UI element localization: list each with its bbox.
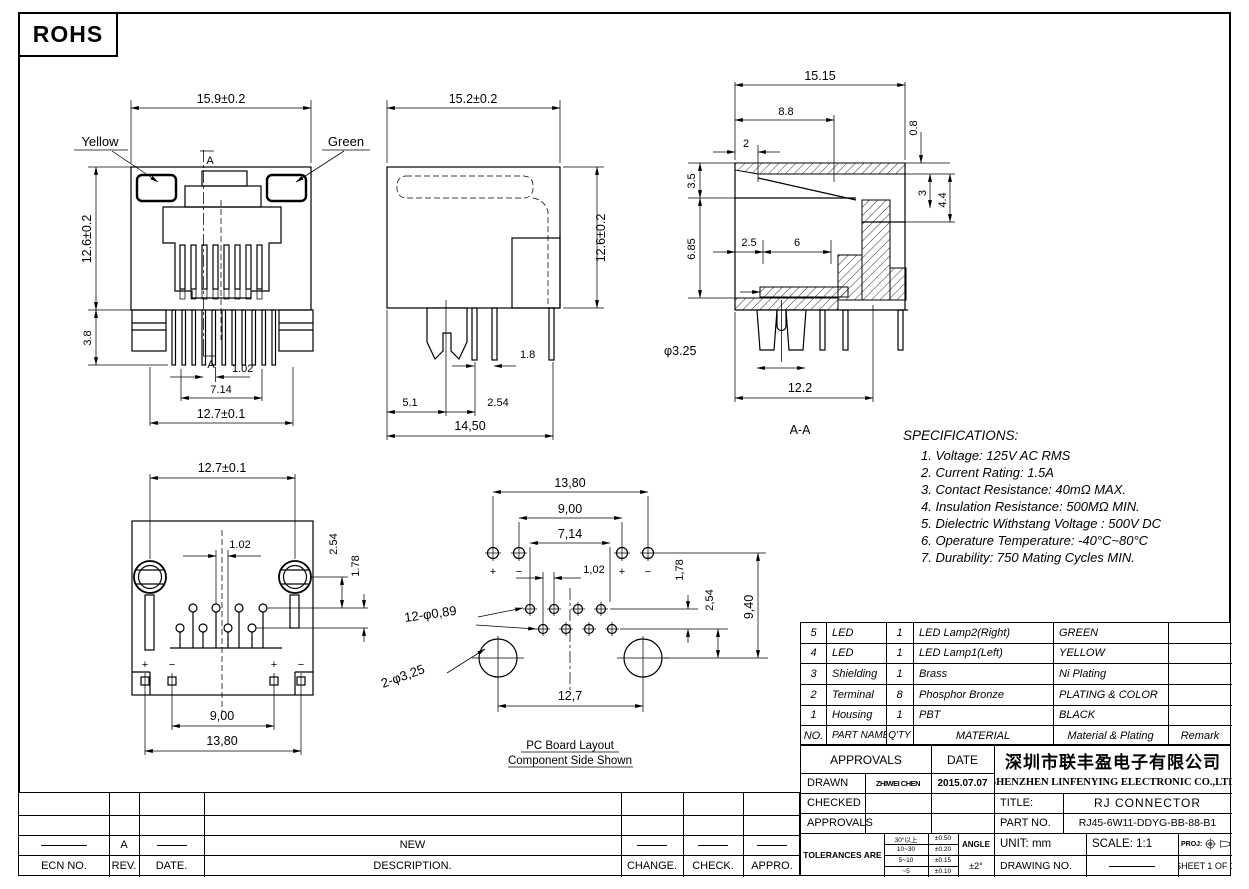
- tolerances-label: TOLERANCES ARE: [801, 833, 884, 877]
- rev-header-date: DATE.: [139, 855, 204, 877]
- rev-appro-dash: [743, 835, 801, 855]
- front-dim-pitch: 1.02: [232, 363, 253, 375]
- bottom-dim-pitch: 1.02: [229, 539, 250, 551]
- pcb-dim-bottom: 12,7: [558, 689, 582, 703]
- rev-ecn-dash: [19, 835, 109, 855]
- pcb-led-holes: [485, 545, 656, 561]
- side-dim-total: 14,50: [454, 419, 485, 433]
- section-view: 15.15 8.8 2 0.8 3 4.4 3.5 6.85 2.5: [664, 69, 955, 437]
- bom-material: LED Lamp2(Right): [913, 623, 1053, 643]
- pcb-dim-r1: 1,78: [674, 559, 686, 580]
- bottom-dim-row2: 1.78: [350, 555, 362, 576]
- bom-header-remark: Remark: [1168, 725, 1232, 746]
- bom-header-qty: Q'TY: [886, 725, 913, 746]
- spec-item: 2. Current Rating: 1.5A: [921, 465, 1238, 480]
- front-dim-pin: 3.8: [82, 330, 94, 345]
- bom-table: 5 LED 1 LED Lamp2(Right) GREEN 4 LED 1 L…: [800, 622, 1231, 745]
- sec-dim-a: 8.8: [778, 106, 793, 118]
- rev-check-dash: [683, 835, 743, 855]
- approvals-header: APPROVALS: [801, 746, 931, 773]
- pcb-dim-inner: 9,00: [558, 502, 582, 516]
- bom-part: Housing: [826, 705, 886, 725]
- rev-header-change: CHANGE.: [621, 855, 683, 877]
- company-name-en: SHENZHEN LINFENYING ELECTRONIC CO.,LTD: [994, 772, 1232, 793]
- rev-change-dash: [621, 835, 683, 855]
- front-dim-total: 12.7±0.1: [197, 407, 246, 421]
- bom-material: Phosphor Bronze: [913, 684, 1053, 705]
- rev-header-check: CHECK.: [683, 855, 743, 877]
- sec-dim-h: 2.5: [741, 237, 756, 249]
- tol-value-1: ±0.50: [928, 833, 958, 844]
- front-view: A A Yellow Green 15.9±0.2 12.6±0.2 3.8 1…: [74, 92, 370, 426]
- sec-dim-d: 3.5: [686, 173, 698, 188]
- pcb-minus-1: −: [516, 566, 522, 578]
- scale-cell: SCALE: 1:1: [1086, 833, 1178, 855]
- company-name-cn: 深圳市联丰盈电子有限公司: [994, 746, 1232, 774]
- unit-cell: UNIT: mm: [994, 833, 1086, 855]
- section-letter-top: A: [206, 155, 214, 167]
- terminal-comb: [170, 604, 282, 648]
- bom-material: LED Lamp1(Left): [913, 643, 1053, 663]
- drawing-sheet: ROHS: [0, 0, 1249, 889]
- angle-label: ANGLE: [958, 833, 994, 855]
- tol-range-4: ~5: [884, 866, 928, 877]
- bom-part: LED: [826, 623, 886, 643]
- spec-item: 5. Dielectric Withstang Voltage : 500V D…: [921, 516, 1238, 531]
- rev-header-desc: DESCRIPTION.: [204, 855, 621, 877]
- bom-qty: 8: [886, 684, 913, 705]
- sec-dim-b: 2: [743, 138, 749, 150]
- title-label: TITLE:: [994, 793, 1063, 813]
- bom-qty: 1: [886, 623, 913, 643]
- pcb-dim-pitch: 1,02: [583, 564, 604, 576]
- title-block: APPROVALS DATE DRAWN ZHIWEI CHEN 2015.07…: [800, 745, 1231, 876]
- led-window-yellow: [137, 175, 176, 201]
- drawn-date: 2015.07.07: [931, 773, 994, 793]
- side-dim-height: 12.6±0.2: [594, 214, 608, 263]
- bom-material: Brass: [913, 663, 1053, 684]
- pad-plus-2: +: [271, 659, 277, 671]
- bom-header-material: MATERIAL: [913, 725, 1053, 746]
- bottom-dim-top: 12.7±0.1: [198, 461, 247, 475]
- bom-plating: Ni Plating: [1053, 663, 1168, 684]
- drawn-label: DRAWN: [801, 773, 865, 793]
- date-header: DATE: [931, 746, 994, 773]
- pad-minus-1: −: [169, 659, 175, 671]
- proj-cell: PROJ:: [1178, 833, 1232, 855]
- bom-qty: 1: [886, 663, 913, 684]
- spec-item: 1. Voltage: 125V AC RMS: [921, 448, 1238, 463]
- rev-date-dash: [139, 835, 204, 855]
- pcb-terminal-holes: [523, 602, 619, 636]
- sec-dim-width: 15.15: [804, 69, 835, 83]
- rev-header-rev: REV.: [109, 855, 139, 877]
- bottom-dim-inner: 9,00: [210, 709, 234, 723]
- bom-no: 4: [801, 643, 826, 663]
- bottom-dim-row: 2.54: [328, 533, 340, 554]
- tol-range-2: 10~30: [884, 844, 928, 855]
- angle-value: ±2°: [958, 855, 994, 877]
- drawing-no-label: DRAWING NO.: [994, 855, 1086, 877]
- drawing-no-dash: [1109, 866, 1155, 867]
- title-value: RJ CONNECTOR: [1063, 793, 1232, 813]
- front-dim-height: 12.6±0.2: [80, 215, 94, 264]
- sec-dim-hole: φ3.25: [664, 344, 696, 358]
- part-no-label: PART NO.: [994, 813, 1063, 833]
- sec-dim-g: 6.85: [686, 238, 698, 259]
- pcb-plus-2: +: [619, 566, 625, 578]
- spec-item: 7. Durability: 750 Mating Cycles MIN.: [921, 550, 1238, 565]
- bom-no: 3: [801, 663, 826, 684]
- bom-qty: 1: [886, 705, 913, 725]
- drawing-no-value: [1086, 855, 1178, 877]
- pcb-callout-small: 12-φ0,89: [403, 603, 457, 625]
- front-dim-width: 15.9±0.2: [197, 92, 246, 106]
- pcb-dim-r3: 9,40: [742, 595, 756, 619]
- sec-dim-total: 12.2: [788, 381, 812, 395]
- bom-qty: 1: [886, 643, 913, 663]
- led-label-green: Green: [328, 134, 364, 149]
- revision-table: A NEW ECN NO. REV. DATE. DESCRIPTION. CH…: [18, 792, 800, 876]
- bom-header-part: PART NAME: [826, 725, 886, 746]
- bom-plating: GREEN: [1053, 623, 1168, 643]
- approvals-label: APPROVALS: [801, 813, 881, 833]
- pcb-caption-2: Component Side Shown: [508, 755, 632, 767]
- bom-header-no: NO.: [801, 725, 826, 746]
- bottom-dim-outer: 13,80: [206, 734, 237, 748]
- tol-value-3: ±0.15: [928, 855, 958, 866]
- section-label: A-A: [790, 423, 812, 437]
- side-dim-b: 2.54: [487, 397, 508, 409]
- rev-letter: A: [109, 835, 139, 855]
- spec-item: 3. Contact Resistance: 40mΩ MAX.: [921, 482, 1238, 497]
- bom-no: 2: [801, 684, 826, 705]
- bom-part: LED: [826, 643, 886, 663]
- sec-dim-f: 4.4: [937, 192, 949, 207]
- side-dim-pinw: 1.8: [520, 349, 535, 361]
- pad-minus-2: −: [298, 659, 304, 671]
- sheet-cell: SHEET 1 OF 1: [1178, 855, 1232, 877]
- tol-range-1: 30°以上: [884, 833, 928, 844]
- spec-item: 6. Operature Temperature: -40°C~80°C: [921, 533, 1238, 548]
- side-dim-width: 15.2±0.2: [449, 92, 498, 106]
- tol-value-4: ±0.10: [928, 866, 958, 877]
- section-letter-bottom: A: [207, 359, 215, 371]
- bom-plating: BLACK: [1053, 705, 1168, 725]
- bom-no: 5: [801, 623, 826, 643]
- pcb-dim-outer: 13,80: [554, 476, 585, 490]
- bom-part: Shielding: [826, 663, 886, 684]
- rev-header-appro: APPRO.: [743, 855, 801, 877]
- projection-symbol-icon: [1204, 836, 1232, 852]
- drawn-name: ZHIWEI CHEN: [865, 773, 931, 793]
- proj-label: PROJ:: [1181, 841, 1202, 848]
- pcb-dim-span: 7,14: [558, 527, 582, 541]
- bom-plating: YELLOW: [1053, 643, 1168, 663]
- bottom-view: + − + − 12.7±0.1 1.02 2.54 1.78 9,00 13,…: [132, 461, 368, 755]
- specifications: SPECIFICATIONS: 1. Voltage: 125V AC RMS …: [903, 428, 1238, 565]
- bom-header-plating: Material & Plating: [1053, 725, 1168, 746]
- pcb-plus-1: +: [490, 566, 496, 578]
- led-pads: [141, 673, 305, 690]
- specs-title: SPECIFICATIONS:: [903, 428, 1238, 443]
- sec-dim-c: 0.8: [908, 120, 920, 135]
- pcb-caption-1: PC Board Layout: [526, 740, 614, 752]
- rev-header-ecn: ECN NO.: [19, 855, 109, 877]
- pcb-minus-2: −: [645, 566, 651, 578]
- bom-no: 1: [801, 705, 826, 725]
- side-dim-a: 5.1: [402, 397, 417, 409]
- checked-label: CHECKED: [801, 793, 865, 813]
- bom-part: Terminal: [826, 684, 886, 705]
- spec-item: 4. Insulation Resistance: 500MΩ MIN.: [921, 499, 1238, 514]
- pcb-layout-view: + − + − 12-φ0,89 2-φ3,25: [379, 476, 768, 767]
- sec-dim-i: 6: [794, 237, 800, 249]
- front-pins: [172, 310, 276, 365]
- bom-material: PBT: [913, 705, 1053, 725]
- pcb-dim-r2: 2,54: [704, 589, 716, 610]
- side-shield-leg: [427, 308, 467, 359]
- pad-plus-1: +: [142, 659, 148, 671]
- pcb-callout-big: 2-φ3,25: [379, 661, 427, 691]
- side-view: 15.2±0.2 12.6±0.2 1.8 5.1 2.54 14,50: [387, 92, 608, 440]
- front-dim-span: 7.14: [210, 384, 231, 396]
- part-no-value: RJ45-6W11-DDYG-BB-88-B1: [1063, 813, 1232, 833]
- rev-description: NEW: [204, 835, 621, 855]
- sec-dim-e: 3: [917, 190, 929, 196]
- tol-value-2: ±0.20: [928, 844, 958, 855]
- tol-range-3: 5~10: [884, 855, 928, 866]
- bom-plating: PLATING & COLOR: [1053, 684, 1168, 705]
- led-label-yellow: Yellow: [81, 134, 119, 149]
